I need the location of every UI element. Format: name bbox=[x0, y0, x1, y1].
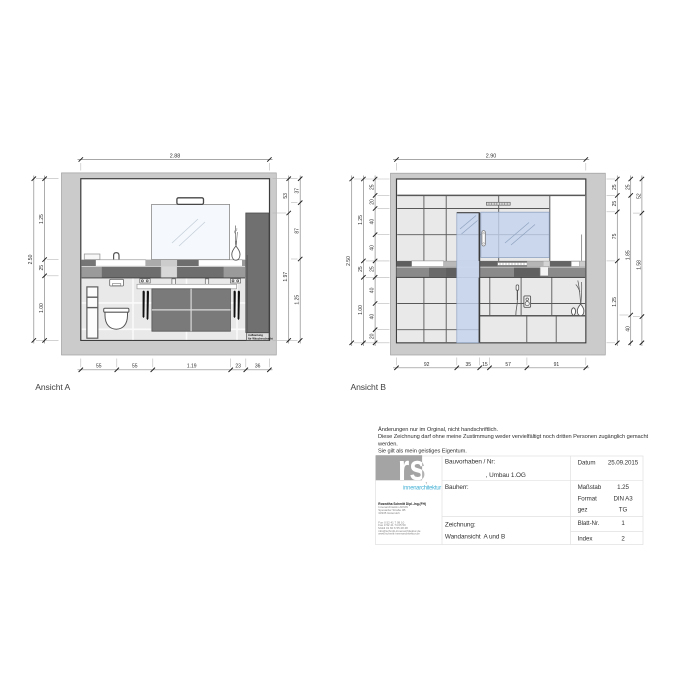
svg-text:innenarchitektur: innenarchitektur bbox=[403, 486, 441, 492]
svg-text:25: 25 bbox=[358, 266, 364, 272]
svg-text:91: 91 bbox=[554, 362, 560, 368]
svg-text:2.50: 2.50 bbox=[28, 254, 34, 264]
svg-text:1.25: 1.25 bbox=[617, 484, 629, 491]
svg-text:1.00: 1.00 bbox=[39, 303, 45, 313]
svg-text:25: 25 bbox=[370, 184, 376, 190]
svg-text:75: 75 bbox=[612, 233, 618, 239]
svg-text:20: 20 bbox=[370, 333, 376, 339]
svg-text:Index: Index bbox=[578, 535, 594, 542]
svg-text:www.schmitt-innenarchitektur.d: www.schmitt-innenarchitektur.de bbox=[378, 532, 420, 536]
svg-text:40: 40 bbox=[625, 326, 631, 332]
svg-text:Zeichnung:: Zeichnung: bbox=[445, 521, 476, 528]
svg-text:1.25: 1.25 bbox=[358, 215, 364, 225]
svg-text:25: 25 bbox=[612, 184, 618, 190]
svg-text:2.88: 2.88 bbox=[170, 154, 181, 160]
svg-text:,: , bbox=[425, 475, 428, 485]
svg-text:1.19: 1.19 bbox=[187, 364, 197, 370]
svg-text:55: 55 bbox=[96, 364, 102, 370]
svg-text:53: 53 bbox=[283, 193, 289, 199]
svg-text:40: 40 bbox=[370, 219, 376, 225]
svg-text:1.00: 1.00 bbox=[358, 305, 364, 315]
svg-text:Wandansicht A und B: Wandansicht A und B bbox=[445, 533, 505, 540]
svg-text:2.50: 2.50 bbox=[346, 256, 352, 266]
svg-text:Blatt-Nr.: Blatt-Nr. bbox=[578, 520, 600, 527]
svg-text:25.09.2015: 25.09.2015 bbox=[608, 459, 639, 466]
svg-text:Aufkantung: Aufkantung bbox=[248, 333, 263, 337]
svg-text:33335 Gütersloh: 33335 Gütersloh bbox=[378, 511, 400, 515]
svg-text:DIN A3: DIN A3 bbox=[613, 496, 633, 503]
svg-text:35: 35 bbox=[466, 362, 472, 368]
svg-text:1.58: 1.58 bbox=[637, 260, 643, 270]
svg-text:TG: TG bbox=[619, 507, 628, 514]
svg-text:87: 87 bbox=[295, 228, 301, 234]
svg-text:40: 40 bbox=[370, 245, 376, 251]
svg-text:25: 25 bbox=[370, 266, 376, 272]
svg-text:40: 40 bbox=[370, 314, 376, 320]
svg-text:20: 20 bbox=[370, 199, 376, 205]
svg-text:57: 57 bbox=[505, 362, 511, 368]
svg-text:Bauvorhaben / Nr:: Bauvorhaben / Nr: bbox=[445, 459, 495, 466]
svg-text:2.90: 2.90 bbox=[486, 154, 497, 160]
svg-text:55: 55 bbox=[132, 364, 138, 370]
svg-text:werden.: werden. bbox=[377, 441, 398, 447]
svg-text:, Umbau 1.OG: , Umbau 1.OG bbox=[486, 472, 526, 479]
svg-text:1.25: 1.25 bbox=[295, 295, 301, 305]
svg-text:gez: gez bbox=[578, 507, 588, 514]
svg-text:Diese Zeichnung darf ohne mein: Diese Zeichnung darf ohne meine Zustimmu… bbox=[378, 434, 649, 440]
svg-text:1.25: 1.25 bbox=[39, 214, 45, 224]
svg-text:15: 15 bbox=[482, 362, 488, 368]
svg-text:40: 40 bbox=[370, 287, 376, 293]
svg-text:23: 23 bbox=[235, 364, 241, 370]
svg-text:Ansicht B: Ansicht B bbox=[351, 382, 387, 392]
svg-text:1.85: 1.85 bbox=[625, 250, 631, 260]
svg-text:Bauherr:: Bauherr: bbox=[445, 484, 469, 491]
svg-text:Maßstab: Maßstab bbox=[578, 484, 602, 491]
svg-text:Datum: Datum bbox=[578, 459, 596, 466]
svg-text:Änderungen nur im Orginal, nic: Änderungen nur im Orginal, nicht handsch… bbox=[378, 426, 499, 433]
svg-text:1.97: 1.97 bbox=[283, 272, 289, 282]
svg-text:36: 36 bbox=[255, 364, 261, 370]
svg-text:25: 25 bbox=[612, 201, 618, 207]
svg-text:für Wäscheschacht: für Wäscheschacht bbox=[248, 337, 273, 341]
svg-text:Ansicht A: Ansicht A bbox=[35, 382, 70, 392]
svg-text:25: 25 bbox=[625, 184, 631, 190]
svg-text:37: 37 bbox=[295, 188, 301, 194]
svg-text:52: 52 bbox=[637, 193, 643, 199]
svg-text:25: 25 bbox=[39, 265, 45, 271]
svg-text:92: 92 bbox=[424, 362, 430, 368]
svg-text:1.25: 1.25 bbox=[612, 297, 618, 307]
svg-text:Format: Format bbox=[578, 496, 597, 503]
